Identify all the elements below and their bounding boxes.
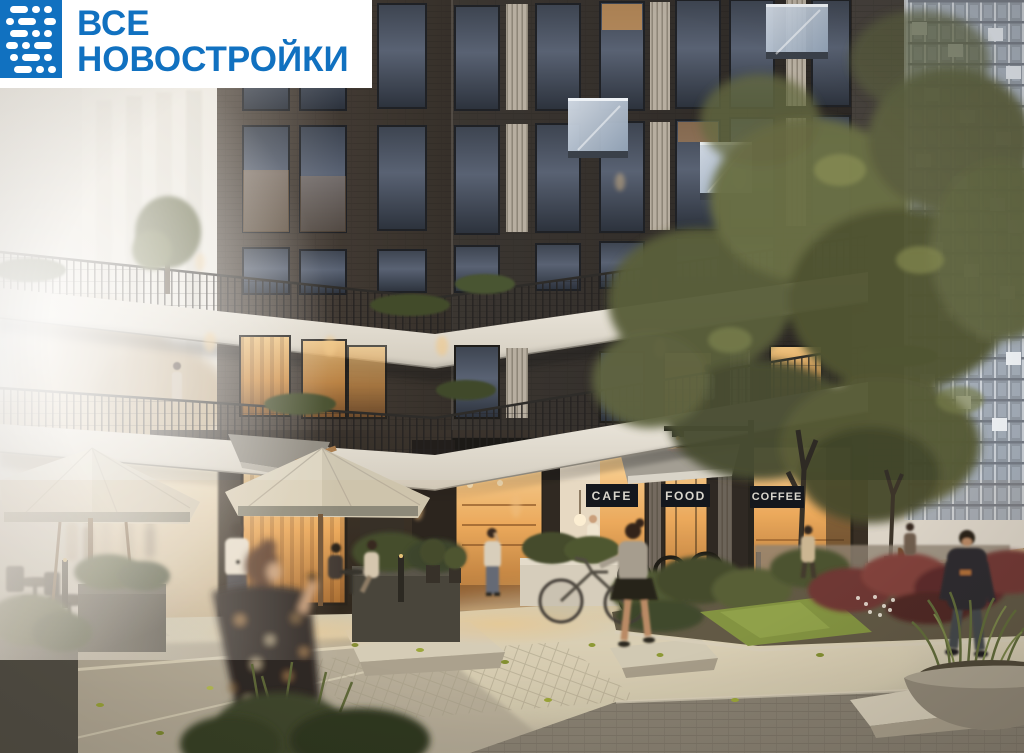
cafe-sign-label: CAFE [592,489,633,503]
coffee-sign-label: COFFEE [752,491,803,503]
residential-complex-render: CAFE FOOD COFFEE ВСЕ НОВОСТРОЙКИ [0,0,1024,753]
food-sign: FOOD [661,484,710,507]
cafe-sign: CAFE [586,484,638,507]
dot-grid-logo-icon [6,5,68,83]
brand-logo: ВСЕ НОВОСТРОЙКИ [0,0,372,88]
scene-painting [0,0,1024,753]
atmosphere [0,0,1024,753]
coffee-sign: COFFEE [750,486,804,508]
logo-text: ВСЕ НОВОСТРОЙКИ [68,0,349,78]
logo-line-2: НОВОСТРОЙКИ [77,42,349,78]
food-sign-label: FOOD [665,489,706,503]
logo-line-1: ВСЕ [77,6,349,42]
